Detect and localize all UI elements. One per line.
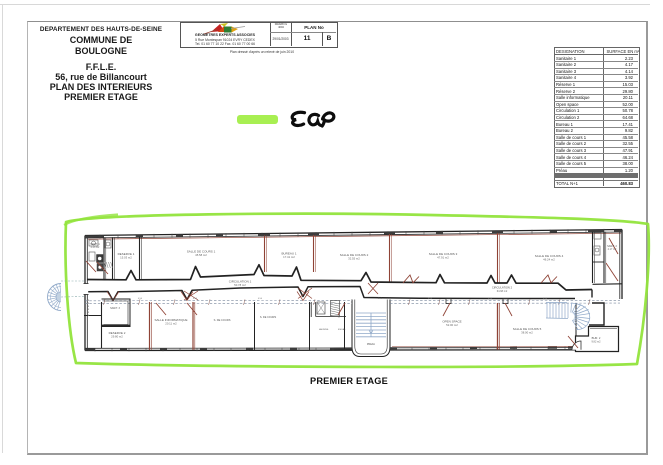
svg-text:17.41 m2: 17.41 m2 <box>283 255 295 259</box>
svg-text:9.82 m2: 9.82 m2 <box>591 340 601 343</box>
svg-text:ESCAL.: ESCAL. <box>338 328 346 331</box>
svg-text:4.17 m2: 4.17 m2 <box>608 248 617 251</box>
svg-text:32.55 m2: 32.55 m2 <box>348 257 360 261</box>
svg-text:45.58 m2: 45.58 m2 <box>195 253 207 257</box>
svg-text:50.78 m2: 50.78 m2 <box>234 283 246 287</box>
svg-text:2.23 m2: 2.23 m2 <box>91 246 100 249</box>
svg-text:4.50: 4.50 <box>138 298 143 300</box>
svg-text:47.91 m2: 47.91 m2 <box>437 256 449 260</box>
svg-text:20.11 m2: 20.11 m2 <box>165 322 177 326</box>
svg-text:S. DE COURS: S. DE COURS <box>214 318 231 322</box>
svg-text:4.50: 4.50 <box>258 298 263 300</box>
svg-text:PREAU: PREAU <box>367 343 376 346</box>
svg-text:ASCENS.: ASCENS. <box>319 328 329 331</box>
svg-text:29.80 m2: 29.80 m2 <box>111 335 123 339</box>
svg-text:15.03 m2: 15.03 m2 <box>120 256 132 260</box>
svg-text:64.68 m2: 64.68 m2 <box>497 290 508 293</box>
svg-text:BUR. 2: BUR. 2 <box>592 336 601 340</box>
svg-text:SANIT. 3: SANIT. 3 <box>110 307 120 310</box>
svg-text:PREMIER ETAGE: PREMIER ETAGE <box>310 376 388 386</box>
svg-text:38.00 m2: 38.00 m2 <box>521 331 533 335</box>
svg-text:52.00 m2: 52.00 m2 <box>446 323 458 327</box>
svg-text:46.24 m2: 46.24 m2 <box>543 258 555 262</box>
svg-text:S. DE COURS: S. DE COURS <box>260 316 277 319</box>
